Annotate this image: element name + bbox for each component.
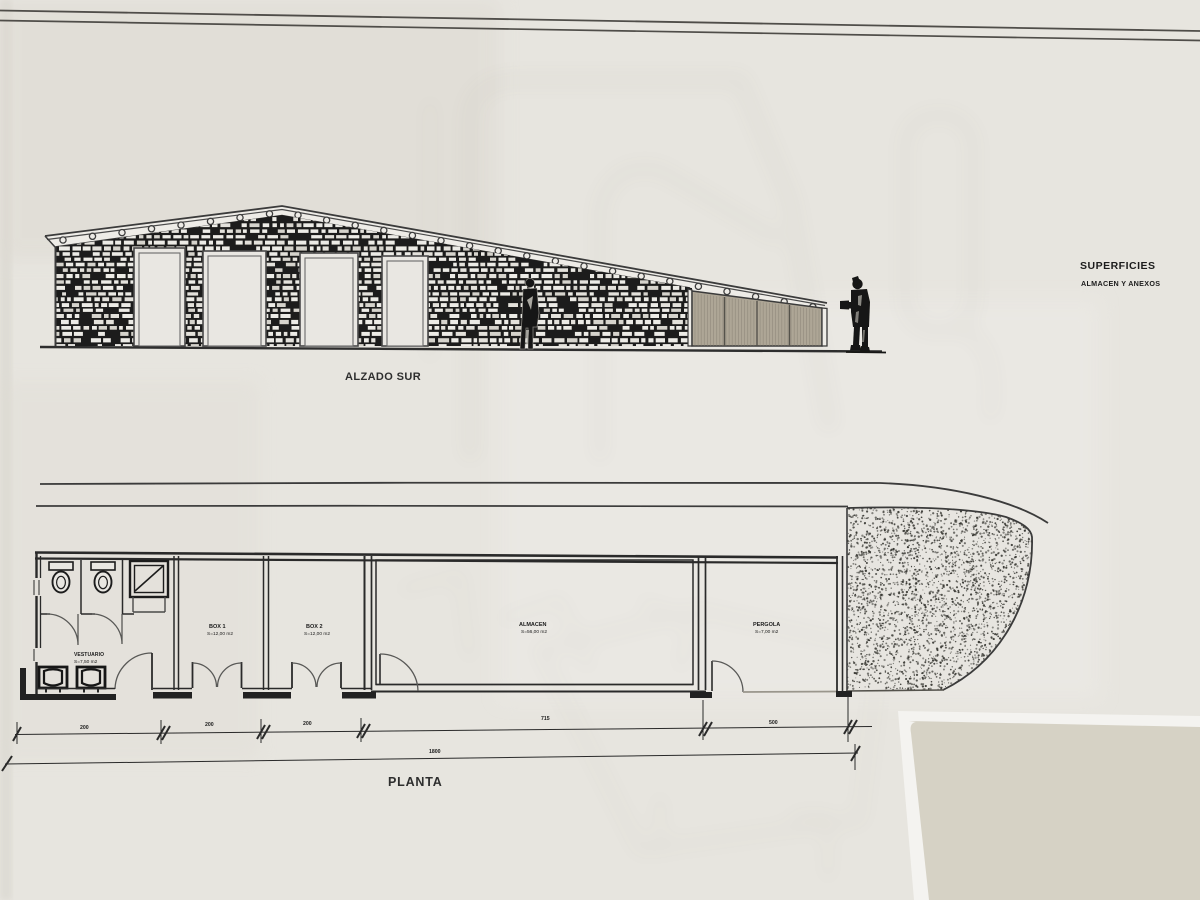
svg-text:200: 200 — [303, 721, 312, 727]
svg-text:BOX 1: BOX 1 — [209, 624, 226, 630]
svg-text:S=7,50 m2: S=7,50 m2 — [74, 659, 98, 665]
svg-text:S=12,00 m2: S=12,00 m2 — [304, 631, 330, 637]
svg-text:PERGOLA: PERGOLA — [753, 622, 780, 628]
svg-text:ALZADO SUR: ALZADO SUR — [345, 371, 421, 383]
svg-text:BOX 2: BOX 2 — [306, 624, 323, 630]
svg-text:200: 200 — [80, 725, 89, 731]
svg-text:S=7,00 m2: S=7,00 m2 — [755, 629, 779, 635]
svg-text:PLANTA: PLANTA — [388, 775, 443, 789]
svg-text:S=12,00 m2: S=12,00 m2 — [207, 631, 233, 637]
svg-text:200: 200 — [205, 722, 214, 728]
svg-text:1800: 1800 — [429, 749, 441, 755]
svg-text:VESTUARIO: VESTUARIO — [74, 652, 104, 658]
svg-text:500: 500 — [769, 720, 778, 726]
svg-text:SUPERFICIES: SUPERFICIES — [1080, 260, 1156, 272]
svg-text:ALMACEN: ALMACEN — [519, 622, 547, 628]
svg-text:S=56,00 m2: S=56,00 m2 — [521, 629, 547, 635]
svg-text:ALMACEN Y ANEXOS: ALMACEN Y ANEXOS — [1081, 279, 1160, 288]
svg-text:715: 715 — [541, 716, 550, 722]
